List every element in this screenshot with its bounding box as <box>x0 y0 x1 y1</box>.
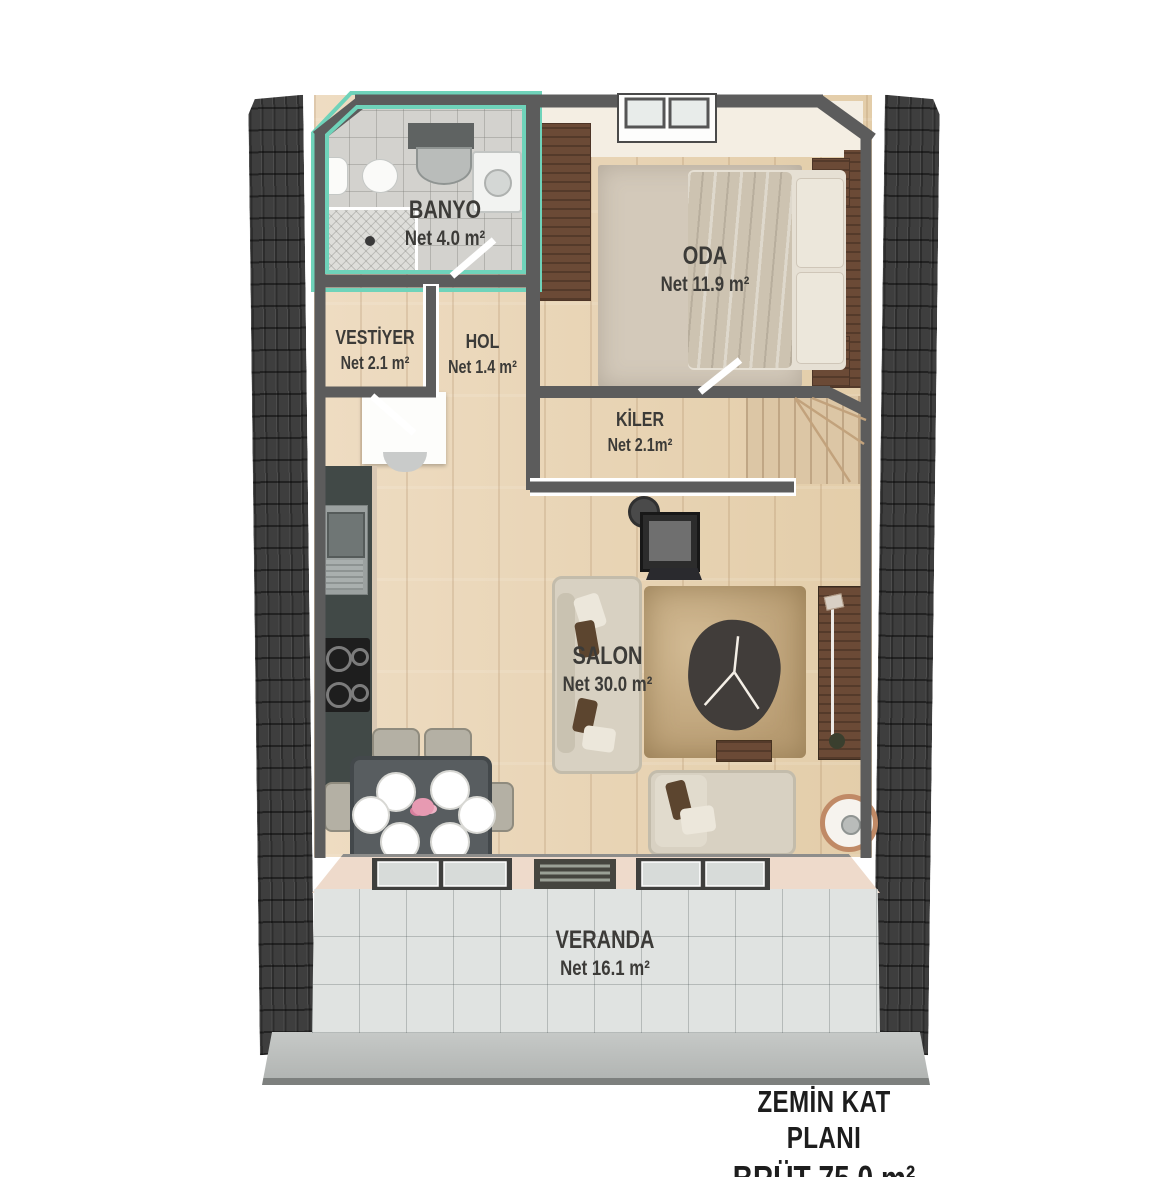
toilet <box>324 157 348 195</box>
sofa-pillow-white-2 <box>581 725 616 753</box>
room-area: Net 16.1 m² <box>533 956 677 983</box>
tv-screen <box>831 609 834 735</box>
room-label-veranda: VERANDA Net 16.1 m² <box>515 924 695 983</box>
room-label-banyo: BANYO Net 4.0 m² <box>360 194 530 253</box>
room-label-kiler: KİLER Net 2.1m² <box>575 408 705 457</box>
tv-photo <box>824 593 845 610</box>
plan-caption: ZEMİN KAT PLANI BRÜT 75.0 m² <box>704 1084 944 1177</box>
wood-stove-top <box>649 521 691 561</box>
room-label-salon: SALON Net 30.0 m² <box>520 640 695 699</box>
room-name: HOL <box>433 330 533 356</box>
floor-plan-canvas: BANYO Net 4.0 m² ODA Net 11.9 m² VESTİYE… <box>0 0 1175 1177</box>
room-area: Net 2.1m² <box>588 434 692 457</box>
coffee-table <box>683 615 786 734</box>
stairs <box>746 396 864 484</box>
table-flowers <box>412 798 434 816</box>
room-name: BANYO <box>377 194 513 226</box>
burner-4 <box>351 684 369 702</box>
room-name: KİLER <box>588 408 692 434</box>
ceiling-fan <box>820 794 878 852</box>
bed-pillow-top <box>796 178 844 268</box>
plan-caption-title: ZEMİN KAT PLANI <box>730 1084 917 1156</box>
fan-hub <box>841 815 861 835</box>
plan-caption-area: BRÜT 75.0 m² <box>730 1158 917 1177</box>
room-label-oda: ODA Net 11.9 m² <box>610 240 800 299</box>
chaise-pillow-white <box>679 805 716 835</box>
burner-3 <box>326 682 352 708</box>
bed-pillow-bottom <box>796 272 844 364</box>
room-name: VESTİYER <box>323 326 427 352</box>
sink-drainboard <box>326 560 363 590</box>
stove <box>320 638 370 712</box>
room-area: Net 11.9 m² <box>629 272 781 299</box>
room-area: Net 1.4 m² <box>433 356 533 379</box>
room-name: SALON <box>538 640 678 672</box>
burner-2 <box>351 648 369 666</box>
room-area: Net 2.1 m² <box>323 352 427 375</box>
left-facade-panel <box>248 95 315 1056</box>
bidet <box>362 159 398 193</box>
sink-bowl <box>327 512 365 558</box>
foundation-plinth <box>262 1032 930 1085</box>
chaise-sofa <box>648 770 796 856</box>
room-area: Net 30.0 m² <box>538 672 678 699</box>
wall-shelf <box>716 740 772 762</box>
washer-drum <box>484 169 512 197</box>
room-name: VERANDA <box>533 924 677 956</box>
wardrobe <box>537 123 591 301</box>
wood-stove <box>640 512 700 572</box>
room-label-hol: HOL Net 1.4 m² <box>420 330 545 379</box>
coffee-table-joints <box>683 615 786 734</box>
room-area: Net 4.0 m² <box>377 226 513 253</box>
right-facade-panel <box>873 95 940 1056</box>
burner-1 <box>326 646 352 672</box>
bathroom-sink <box>416 147 472 185</box>
room-name: ODA <box>629 240 781 272</box>
tv-plant <box>829 733 845 749</box>
kitchen-sink <box>322 505 368 595</box>
bathroom-counter <box>408 123 474 149</box>
tv-unit <box>818 586 862 760</box>
wood-stove-hearth <box>646 568 702 580</box>
veranda-sill <box>312 854 880 893</box>
